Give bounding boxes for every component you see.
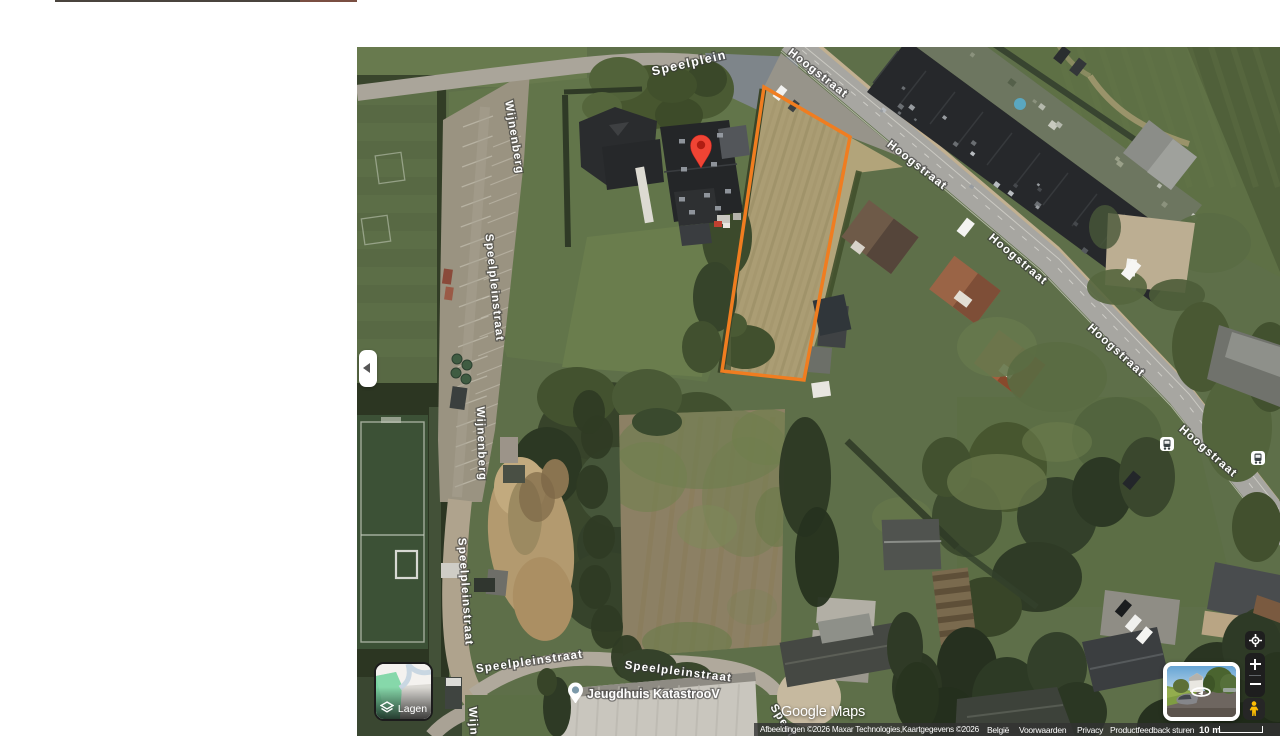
svg-text:Jeugdhuis KatastrooV: Jeugdhuis KatastrooV [587,687,720,701]
